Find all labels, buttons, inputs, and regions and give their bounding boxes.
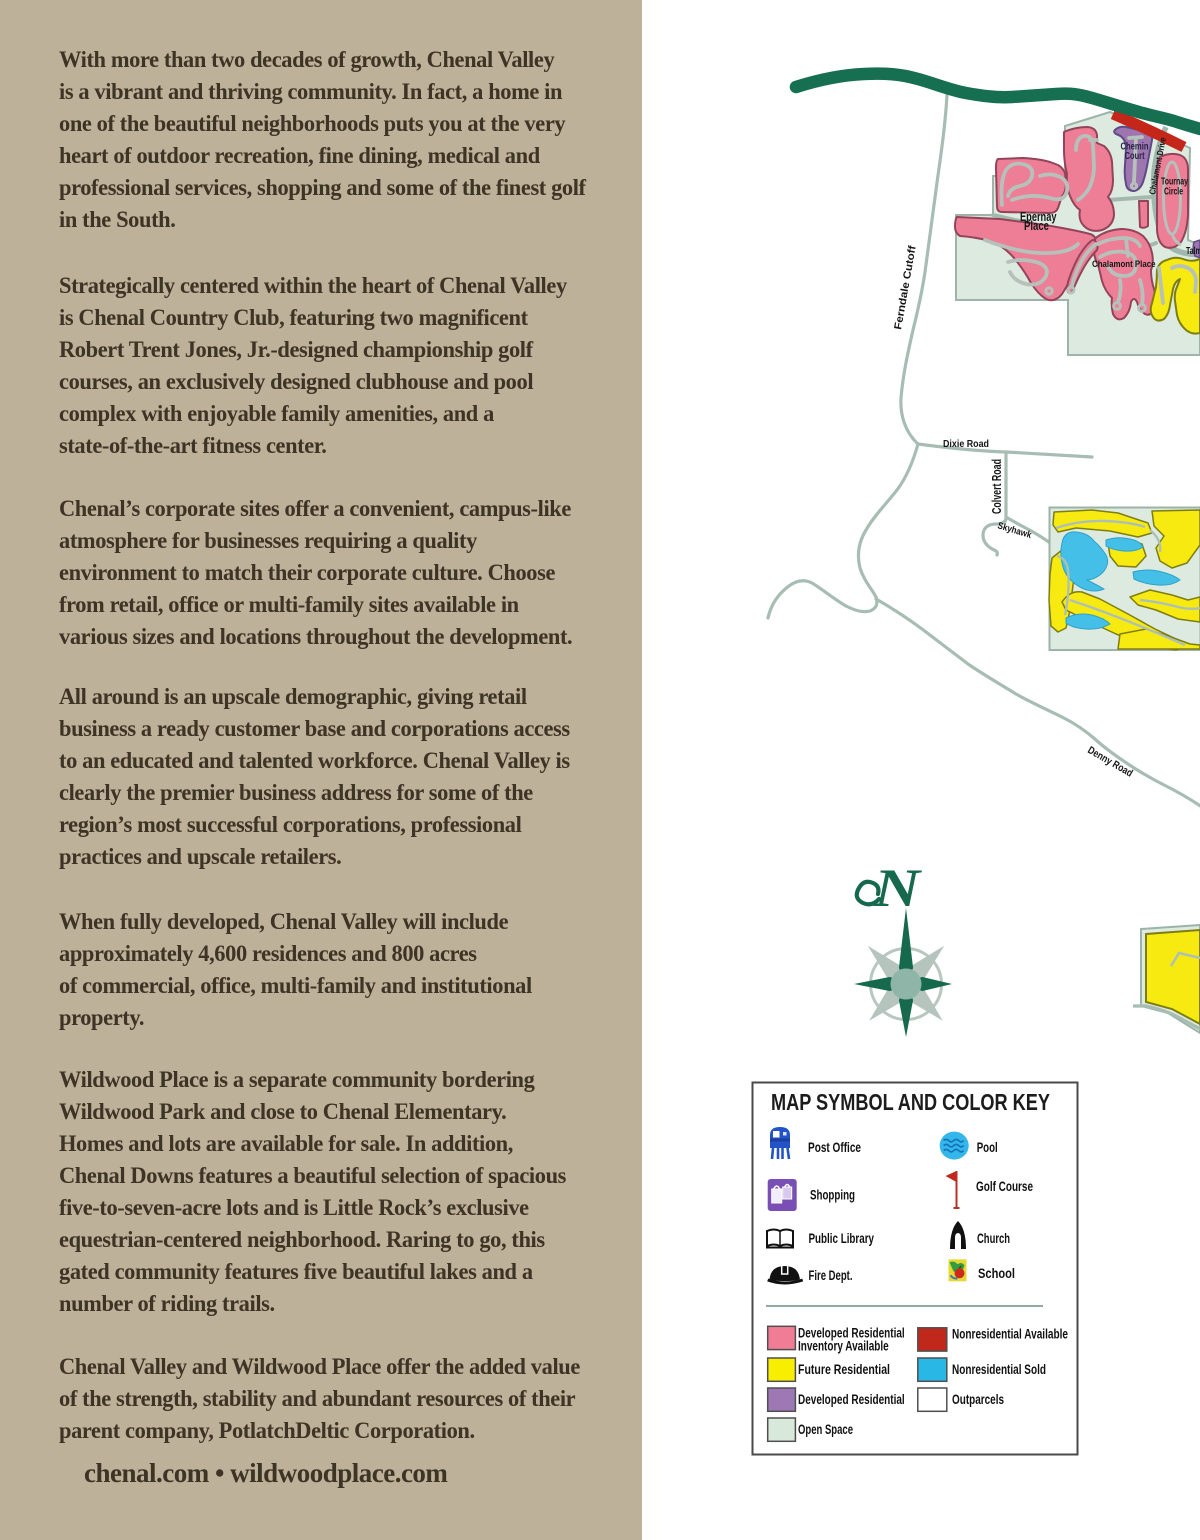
svg-text:Golf Course: Golf Course — [976, 1178, 1033, 1194]
svg-text:School: School — [978, 1265, 1015, 1281]
svg-text:Outparcels: Outparcels — [952, 1392, 1004, 1407]
svg-text:Shopping: Shopping — [810, 1187, 855, 1203]
svg-text:Church: Church — [977, 1230, 1010, 1246]
svg-text:Post Office: Post Office — [808, 1139, 861, 1155]
svg-text:Open Space: Open Space — [798, 1422, 853, 1437]
svg-text:Inventory Available: Inventory Available — [798, 1339, 889, 1354]
svg-text:Developed Residential: Developed Residential — [798, 1392, 905, 1407]
svg-text:Nonresidential Sold: Nonresidential Sold — [952, 1362, 1046, 1377]
svg-text:MAP SYMBOL AND COLOR KEY: MAP SYMBOL AND COLOR KEY — [771, 1089, 1050, 1115]
svg-text:Public Library: Public Library — [809, 1230, 875, 1246]
svg-text:Nonresidential Available: Nonresidential Available — [952, 1327, 1068, 1342]
svg-text:Fire Dept.: Fire Dept. — [809, 1267, 853, 1283]
svg-text:Pool: Pool — [977, 1139, 998, 1155]
svg-text:Future Residential: Future Residential — [798, 1362, 890, 1377]
